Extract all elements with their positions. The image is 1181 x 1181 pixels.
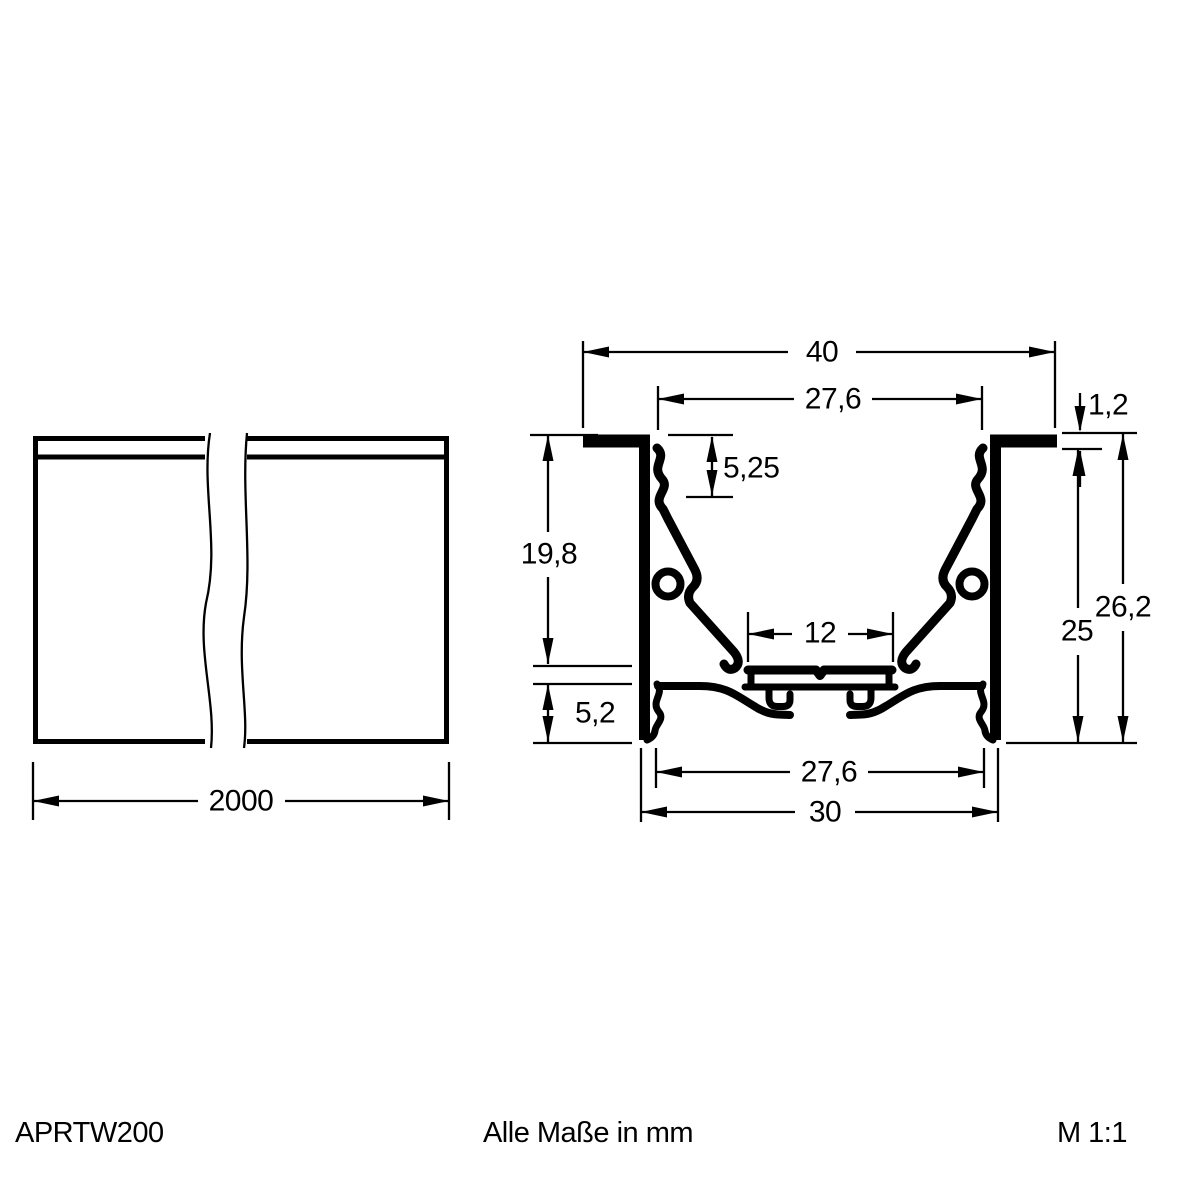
dim-top-inner-width: 27,6 bbox=[658, 383, 982, 431]
dim-length-label: 2000 bbox=[209, 785, 274, 818]
dim-inner-depth-label: 19,8 bbox=[521, 538, 577, 571]
dim-base-height: 5,2 bbox=[533, 684, 632, 743]
dim-slot-width: 12 bbox=[748, 612, 893, 662]
technical-drawing-canvas: 2000 40 2 bbox=[0, 0, 1181, 1181]
side-view-profile bbox=[36, 430, 447, 752]
dim-wall-height: 25 bbox=[1061, 450, 1093, 742]
led-platform bbox=[748, 670, 892, 676]
inner-wall-right bbox=[902, 448, 983, 669]
dim-slot-width-label: 12 bbox=[804, 617, 836, 650]
footer: APRTW200 Alle Maße in mm M 1:1 bbox=[15, 1117, 1127, 1149]
dim-length: 2000 bbox=[33, 762, 449, 820]
cross-section-profile bbox=[583, 436, 1057, 740]
dim-bottom-inner-width-label: 27,6 bbox=[801, 756, 857, 789]
dim-wall-height-label: 25 bbox=[1061, 615, 1093, 648]
dim-overall-width-label: 40 bbox=[806, 336, 838, 369]
dim-overall-height-label: 26,2 bbox=[1095, 591, 1151, 624]
dim-flange-thickness: 1,2 bbox=[1062, 389, 1137, 488]
dim-groove-depth: 5,25 bbox=[668, 435, 779, 497]
dim-base-height-label: 5,2 bbox=[575, 697, 615, 730]
article-number: APRTW200 bbox=[15, 1117, 164, 1149]
units-note: Alle Maße in mm bbox=[483, 1117, 693, 1149]
dim-bottom-inner-width: 27,6 bbox=[656, 748, 984, 789]
screw-port-right bbox=[960, 572, 985, 597]
dim-flange-thickness-label: 1,2 bbox=[1088, 389, 1128, 422]
dim-groove-depth-label: 5,25 bbox=[723, 452, 779, 485]
dim-inner-depth: 19,8 bbox=[521, 435, 632, 684]
dim-bottom-outer-width-label: 30 bbox=[809, 796, 841, 829]
dim-top-inner-width-label: 27,6 bbox=[805, 383, 861, 416]
drawing-scale: M 1:1 bbox=[1057, 1117, 1127, 1149]
screw-port-left bbox=[656, 572, 681, 597]
